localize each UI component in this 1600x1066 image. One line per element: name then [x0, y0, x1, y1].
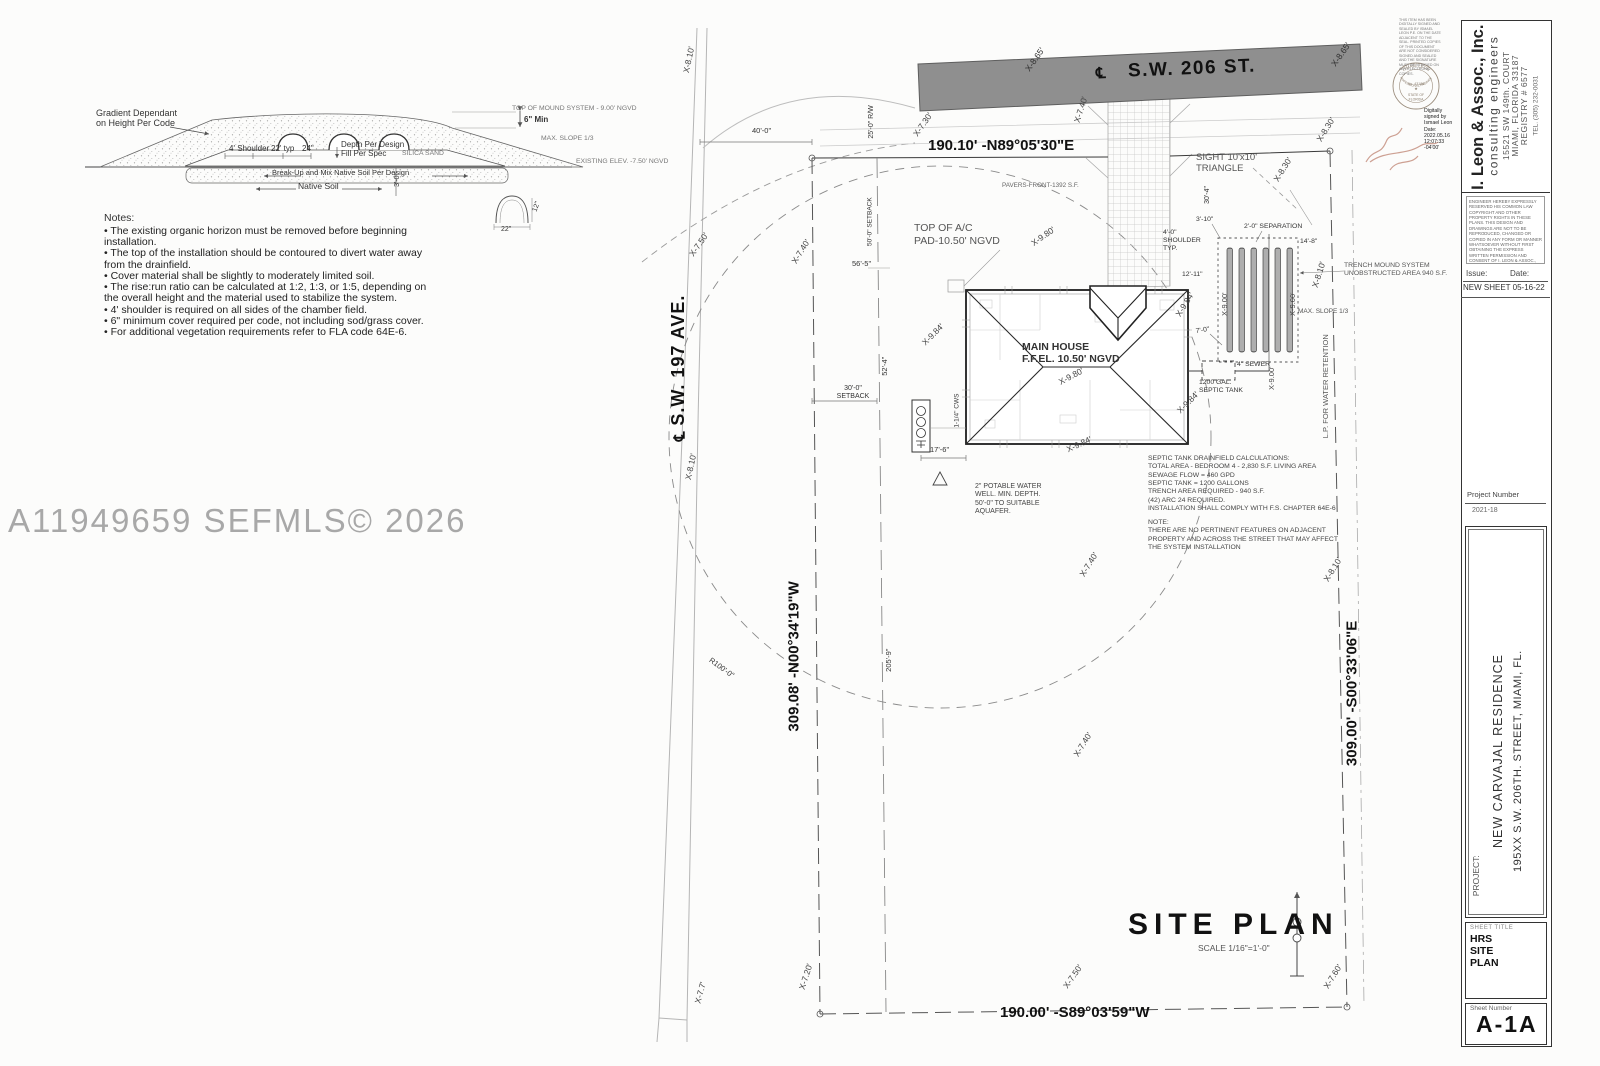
- dim-14-8: 14'-8": [1300, 238, 1317, 246]
- drawing-title: SITE PLAN: [1128, 908, 1339, 942]
- depth-fill-label: Depth Per Design Fill Per Spec: [341, 141, 404, 159]
- site-plan-sheet: ISMAEL LEON PROFESSIONAL ENGINEER No. 43…: [0, 0, 1600, 1066]
- trench-mound-note: TRENCH MOUND SYSTEM UNOBSTRUCTED AREA 94…: [1344, 262, 1447, 277]
- setback-50-label: 50'-0" SETBACK: [866, 180, 873, 264]
- septic-tank-label: 1200 GAL. SEPTIC TANK: [1199, 379, 1243, 395]
- project-number-value: 2021-18: [1472, 507, 1498, 515]
- adjacent-note: NOTE: THERE ARE NO PERTINENT FEATURES ON…: [1148, 519, 1338, 552]
- sheet-number-value: A-1A: [1476, 1012, 1538, 1038]
- setback-30-label: 30'-0" SETBACK: [833, 385, 873, 402]
- shoulder-label: 4' Shoulder: [229, 145, 269, 154]
- sheet-title-value: HRS SITE PLAN: [1470, 933, 1518, 969]
- seal-state-label: STATE OF: [1408, 93, 1424, 97]
- six-min-label: 6" Min: [524, 116, 548, 125]
- spot-elevation: X-9.00': [1289, 282, 1297, 326]
- note-item: • The existing organic horizon must be r…: [104, 226, 436, 248]
- centerline-icon: ℄: [1096, 66, 1106, 83]
- dim-205-9: 205'-9": [885, 635, 893, 685]
- bearing-east: 309.00' -S00°33'06"E: [1345, 583, 1362, 803]
- ac-pad-note: TOP OF A/C PAD-10.50' NGVD: [914, 222, 1000, 248]
- note-item: • For additional vegetation requirements…: [104, 327, 436, 338]
- centerline-icon: ℄: [672, 432, 689, 442]
- issue-divider: [1461, 297, 1550, 298]
- spot-elevation: X-9.00': [1221, 282, 1229, 326]
- note-item: • The top of the installation should be …: [104, 248, 436, 270]
- bearing-south: 190.00' -S89°03'59"W: [1000, 1005, 1150, 1022]
- company-name: I. Leon & Assoc., Inc.: [1469, 21, 1487, 193]
- chamber-width-label: 22": [501, 226, 511, 234]
- notes-title: Notes:: [104, 213, 134, 225]
- digital-signature-text: Digitally signed by Ismael Leon Date: 20…: [1424, 108, 1460, 152]
- project-name: NEW CARVAJAL RESIDENCE: [1491, 611, 1505, 891]
- silica-sand-label: SILICA SAND: [402, 150, 444, 158]
- dim-40: 40'-0": [752, 127, 771, 135]
- dim-56-5: 56'-5": [852, 260, 871, 268]
- drawing-scale: SCALE 1/16"=1'-0": [1198, 944, 1270, 954]
- pavers-note: PAVERS-FRONT-1392 S.F.: [1002, 182, 1079, 189]
- sheet-title-label: SHEET TITLE: [1470, 925, 1513, 932]
- max-slope-label: MAX. SLOPE 1/3: [541, 135, 594, 143]
- street-name-left: S.W. 197 AVE.: [668, 275, 688, 445]
- main-house-label: MAIN HOUSE F.F.EL. 10.50' NGVD: [1022, 341, 1120, 365]
- digital-signature-disclaimer: THIS ITEM HAS BEEN DIGITALLY SIGNED AND …: [1399, 18, 1441, 76]
- typ22-label: 22' typ: [271, 145, 294, 154]
- project-label: PROJECT:: [1472, 841, 1482, 911]
- max-slope-note: MAX. SLOPE 1/3: [1298, 308, 1348, 315]
- issue-entry: NEW SHEET 05-16-22: [1463, 284, 1545, 293]
- dim-17-6: 17'-6": [930, 446, 949, 454]
- company-tagline: consulting engineers: [1487, 20, 1500, 192]
- top-of-mound-label: TOP OF MOUND SYSTEM - 9.00' NGVD: [512, 105, 637, 113]
- dim-3-0-label: 3'-0": [394, 165, 402, 195]
- dim-3-10: 3'-10": [1196, 216, 1213, 224]
- separation-dim: 2'-0" SEPARATION: [1244, 223, 1302, 231]
- septic-calcs: SEPTIC TANK DRAINFIELD CALCULATIONS: TOT…: [1148, 455, 1336, 514]
- native-soil-label: Native Soil: [298, 182, 339, 192]
- sewer-label: 4" SEWER: [1237, 361, 1270, 369]
- note-item: • The rise:run ratio can be calculated a…: [104, 282, 436, 304]
- spot-elevation: X-9.00': [1268, 356, 1276, 400]
- dim-12-11: 12'-11": [1182, 271, 1203, 279]
- bearing-north: 190.10' -N89°05'30"E: [928, 138, 1074, 155]
- driveway: [1086, 99, 1192, 288]
- rw-25-label: 25'-0" R/W: [868, 95, 876, 149]
- issue-underline: [1463, 281, 1548, 282]
- dim24-label: 24": [302, 145, 314, 154]
- notes-list: • The existing organic horizon must be r…: [104, 226, 436, 338]
- project-address: 195XX S.W. 206TH. STREET, MIAMI, FL.: [1512, 611, 1524, 911]
- gradient-note: Gradient Dependant on Height Per Code: [96, 108, 177, 128]
- sight-triangle-note: SIGHT 10'x10' TRIANGLE: [1196, 153, 1257, 174]
- svg-text:★: ★: [1414, 86, 1418, 91]
- cws-label: 1-1/4" CWS: [953, 381, 960, 441]
- lp-retention-label: L.P. FOR WATER RETENTION: [1322, 326, 1330, 446]
- project-number-underline: [1465, 503, 1546, 504]
- project-number-label: Project Number: [1467, 491, 1519, 499]
- shoulder-typ-note: 4'-0" SHOULDER TYP.: [1163, 229, 1201, 253]
- mls-watermark: A11949659 SEFMLS© 2026: [8, 502, 466, 540]
- seal-state-name: FLORIDA: [1409, 98, 1424, 102]
- date-label: Date:: [1510, 270, 1529, 279]
- bearing-west: 309.08' -N00°34'19"W: [787, 546, 804, 766]
- issue-label: Issue:: [1466, 270, 1487, 279]
- existing-elev-label: EXISTING ELEV. -7.50' NGVD: [576, 158, 668, 166]
- copyright-notice: ENGINEER HEREBY EXPRESSLY RESERVED HIS C…: [1466, 196, 1545, 264]
- dim-30-4: 30'-4": [1204, 175, 1212, 215]
- company-phone: TEL. (305) 232-0031: [1532, 20, 1539, 192]
- break-up-label: Break-Up and Mix Native Soil Per Design: [272, 169, 409, 177]
- company-registry: REGISTRY # 6577: [1520, 20, 1530, 192]
- dim-52-4: 52'-4": [881, 346, 889, 386]
- well-note: 2" POTABLE WATER WELL. MIN. DEPTH. 50'-0…: [975, 483, 1042, 516]
